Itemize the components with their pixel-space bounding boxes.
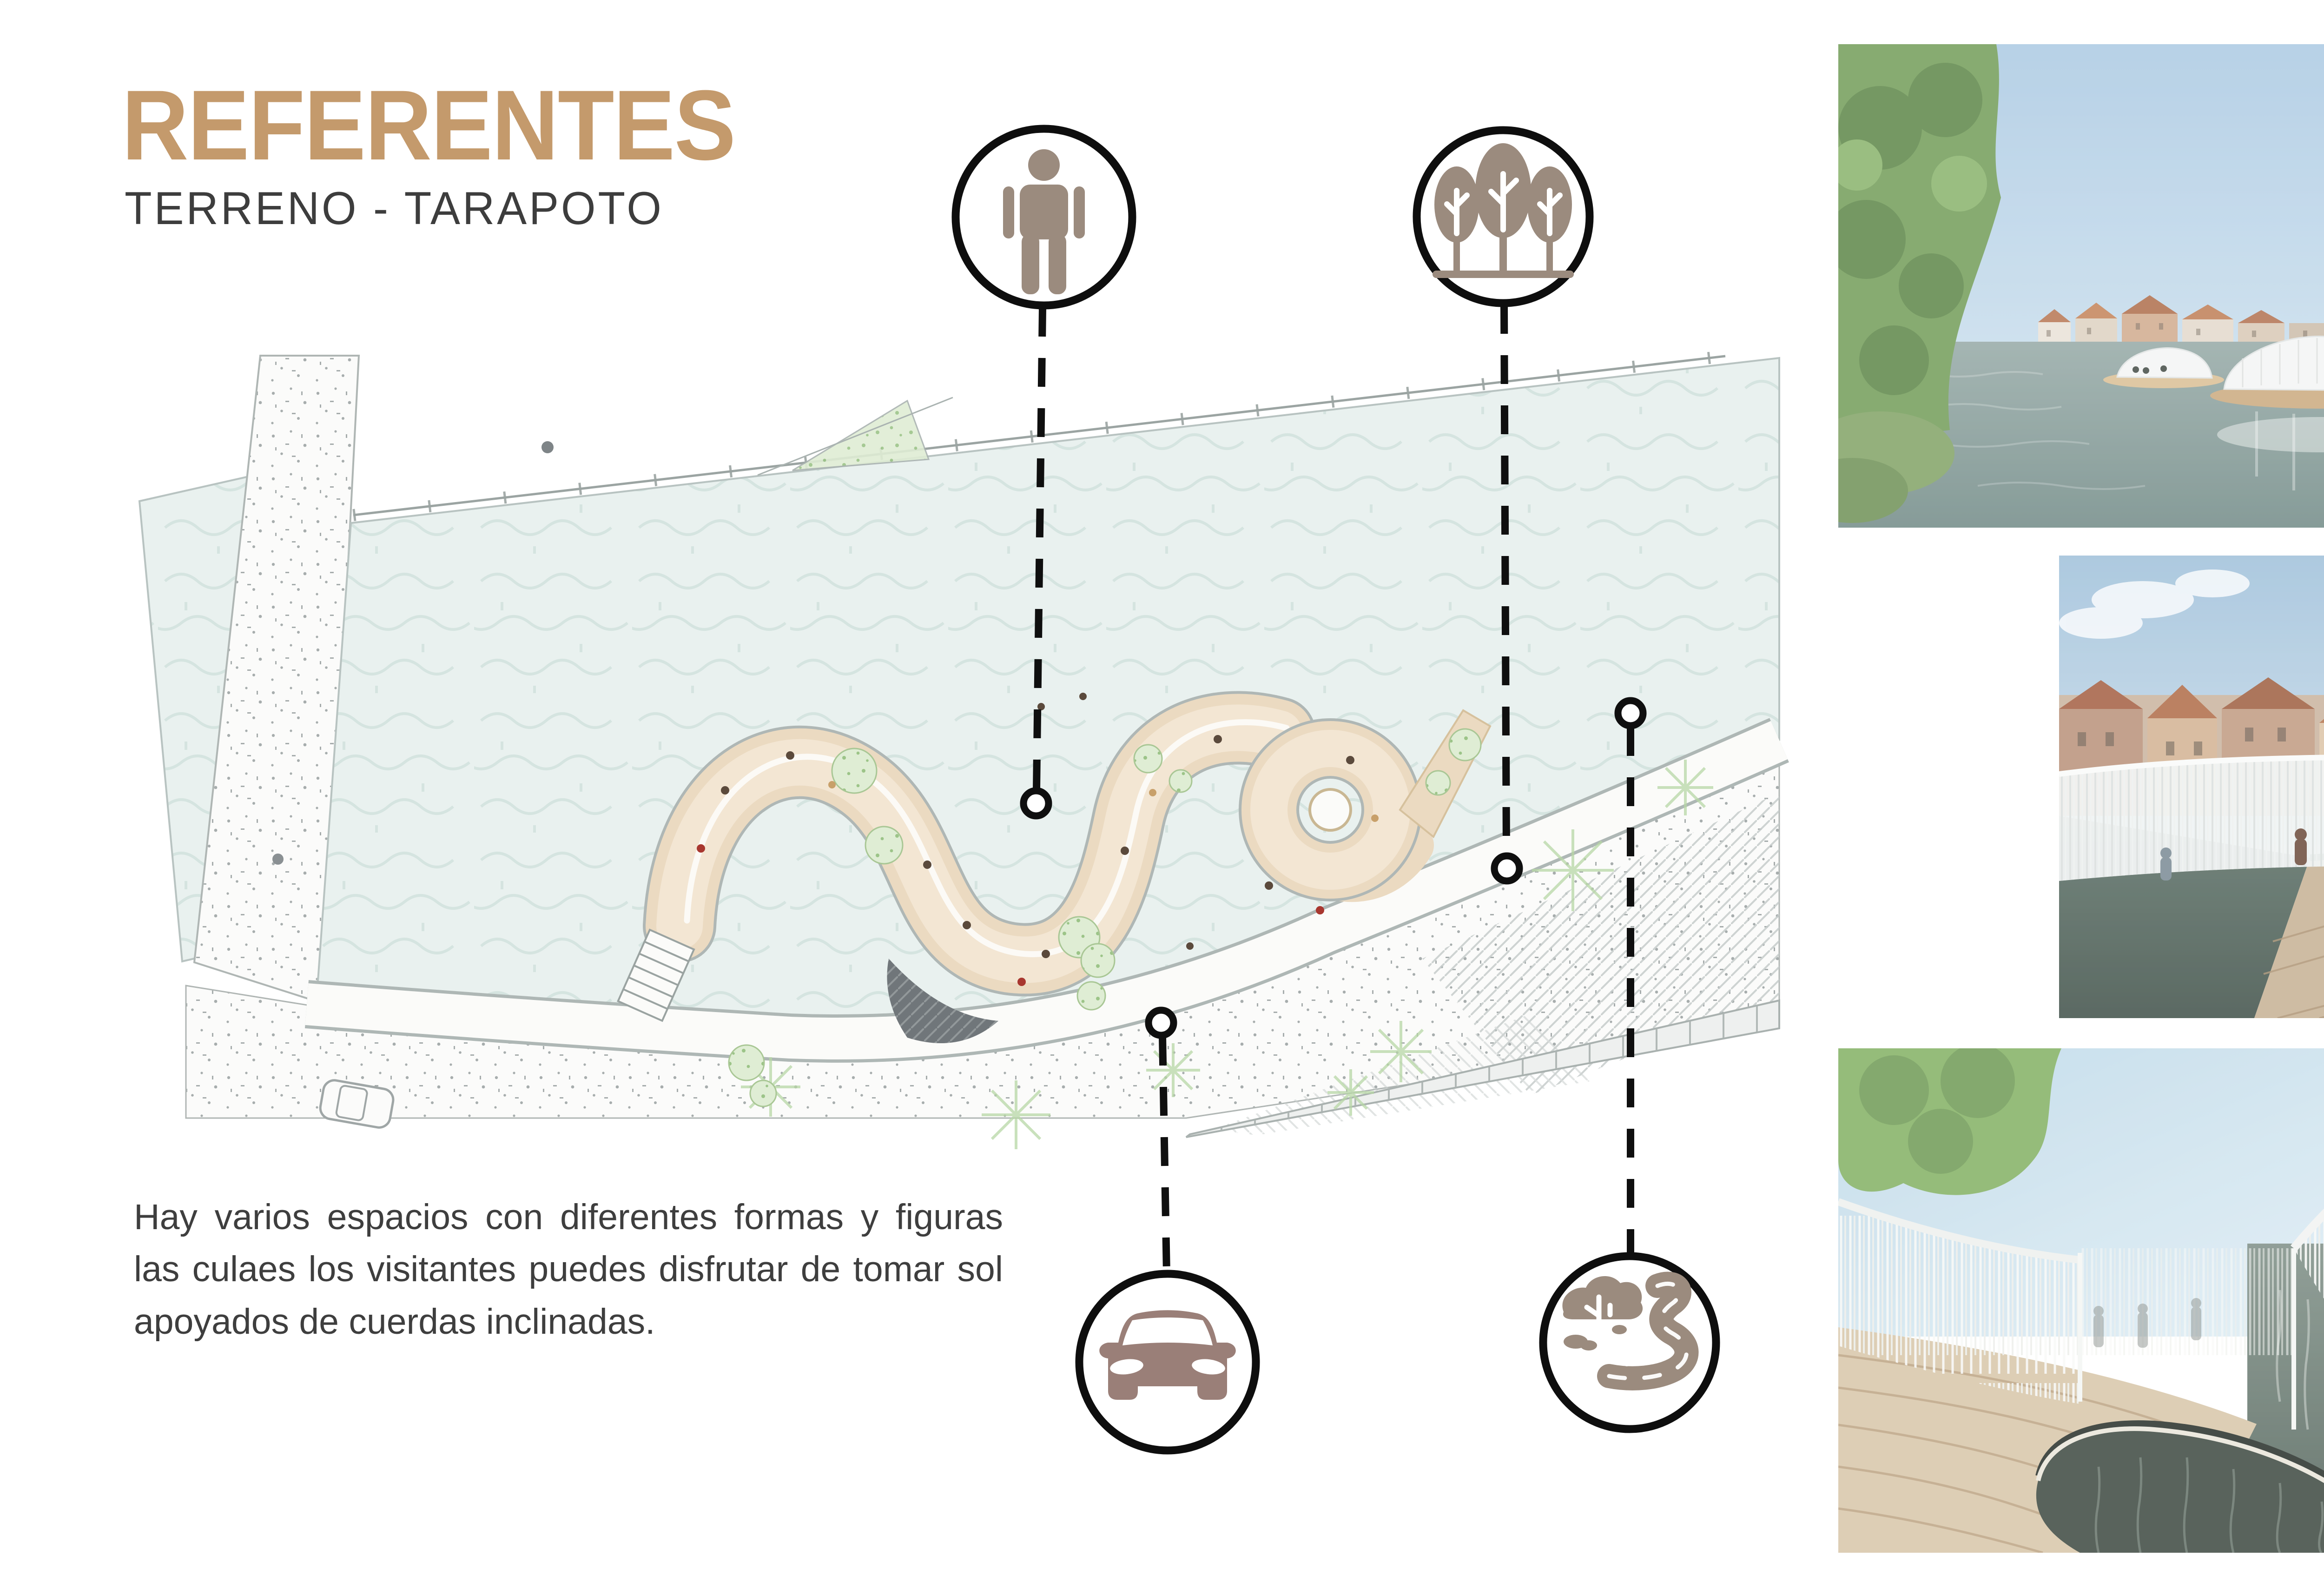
car-icon [1079, 1274, 1256, 1450]
slide: REFERENTES TERRENO - TARAPOTO [0, 0, 2324, 1569]
description-paragraph: Hay varios espacios con diferentes forma… [134, 1191, 1003, 1348]
photo2-fade [2059, 556, 2324, 1018]
plan-pavilion-loop [1269, 748, 1392, 871]
person-icon [956, 129, 1132, 305]
photo-canal [1838, 44, 2324, 528]
river-marker [1618, 701, 1643, 726]
photo3-fade [1838, 1048, 2324, 1553]
person-marker [1023, 791, 1049, 816]
photo1-fade [1838, 44, 2324, 528]
trees-icon [1417, 130, 1590, 303]
trees-leader-line [1504, 305, 1506, 854]
plan-figure [541, 441, 554, 453]
car-marker [1149, 1010, 1174, 1035]
photo-deck-opening [1838, 1048, 2324, 1553]
trees-marker [1494, 856, 1519, 881]
plan-figure [272, 854, 284, 865]
river-icon [1543, 1256, 1716, 1429]
photo-deck-people [2059, 556, 2324, 1018]
